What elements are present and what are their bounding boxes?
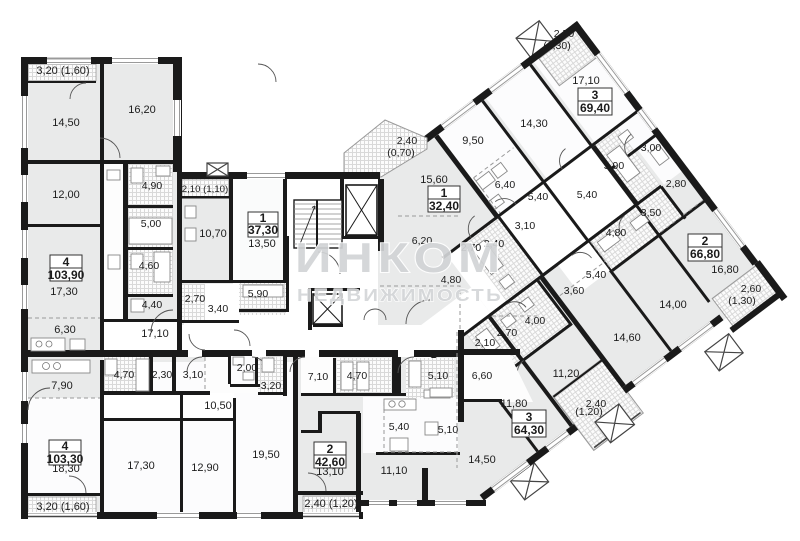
svg-text:3,10: 3,10	[515, 220, 536, 232]
svg-text:4,70: 4,70	[114, 369, 135, 381]
svg-text:4: 4	[63, 255, 70, 269]
svg-text:6,30: 6,30	[54, 324, 75, 336]
svg-text:4,90: 4,90	[142, 180, 163, 192]
svg-text:10,70: 10,70	[199, 228, 227, 240]
svg-text:5,10: 5,10	[428, 370, 449, 382]
svg-text:16,80: 16,80	[711, 264, 739, 276]
svg-text:66,80: 66,80	[690, 247, 720, 261]
svg-text:2,30: 2,30	[152, 369, 173, 381]
svg-text:2,80: 2,80	[666, 178, 687, 190]
svg-text:2,00: 2,00	[237, 362, 258, 374]
svg-text:16,20: 16,20	[128, 104, 156, 116]
svg-text:(0,70): (0,70)	[387, 147, 414, 159]
svg-text:12,90: 12,90	[191, 462, 219, 474]
svg-text:4,80: 4,80	[606, 227, 627, 239]
svg-text:103,90: 103,90	[48, 268, 85, 282]
svg-text:5,40: 5,40	[586, 269, 607, 281]
svg-text:2,40 (1,20): 2,40 (1,20)	[304, 498, 357, 510]
svg-text:3,20 (1,60): 3,20 (1,60)	[36, 65, 89, 77]
svg-text:2,70: 2,70	[185, 293, 206, 305]
svg-text:3,00: 3,00	[641, 142, 662, 154]
svg-text:7,90: 7,90	[51, 380, 72, 392]
svg-text:14,30: 14,30	[520, 118, 548, 130]
svg-text:3: 3	[526, 410, 533, 424]
svg-text:11,10: 11,10	[381, 465, 408, 477]
svg-text:11,20: 11,20	[553, 368, 580, 380]
svg-text:4,60: 4,60	[139, 260, 160, 272]
svg-text:5,00: 5,00	[141, 218, 162, 230]
svg-text:2: 2	[702, 234, 709, 248]
svg-text:1: 1	[441, 186, 448, 200]
svg-text:2,70: 2,70	[497, 327, 518, 339]
svg-text:37,30: 37,30	[248, 223, 278, 237]
svg-text:42,60: 42,60	[315, 455, 345, 469]
svg-text:69,40: 69,40	[580, 101, 610, 115]
svg-text:15,60: 15,60	[420, 174, 448, 186]
svg-text:6,40: 6,40	[495, 179, 516, 191]
svg-text:64,30: 64,30	[514, 423, 544, 437]
svg-text:103,30: 103,30	[47, 452, 84, 466]
svg-text:3,60: 3,60	[564, 285, 585, 297]
svg-text:12,00: 12,00	[52, 189, 80, 201]
svg-text:3,90: 3,90	[604, 160, 625, 172]
svg-text:10,50: 10,50	[204, 400, 232, 412]
svg-text:14,50: 14,50	[52, 117, 80, 129]
svg-text:17,30: 17,30	[127, 460, 155, 472]
svg-text:ИНКОМ: ИНКОМ	[295, 234, 505, 281]
svg-text:5,90: 5,90	[248, 288, 269, 300]
svg-text:4,40: 4,40	[142, 299, 163, 311]
svg-text:3,10: 3,10	[183, 369, 204, 381]
svg-text:2: 2	[327, 442, 334, 456]
svg-text:5,40: 5,40	[389, 421, 410, 433]
svg-text:3,20 (1,60): 3,20 (1,60)	[36, 501, 89, 513]
svg-text:17,10: 17,10	[141, 328, 169, 340]
svg-text:11,80: 11,80	[501, 398, 528, 410]
svg-text:3,20: 3,20	[261, 380, 282, 392]
svg-text:(1,30): (1,30)	[728, 295, 755, 307]
svg-text:(1,20): (1,20)	[575, 406, 602, 418]
svg-text:5,40: 5,40	[577, 189, 598, 201]
svg-text:НЕДВИЖИМОСТЬ: НЕДВИЖИМОСТЬ	[297, 285, 503, 305]
svg-text:17,30: 17,30	[50, 286, 78, 298]
svg-text:3: 3	[592, 88, 599, 102]
svg-text:4,70: 4,70	[347, 370, 368, 382]
svg-text:2,10: 2,10	[475, 337, 496, 349]
svg-text:6,60: 6,60	[472, 370, 493, 382]
svg-text:4,00: 4,00	[525, 315, 546, 327]
svg-text:2,50: 2,50	[554, 28, 575, 40]
svg-text:2,60: 2,60	[741, 283, 762, 295]
svg-text:(1,30): (1,30)	[543, 40, 570, 52]
svg-text:32,40: 32,40	[429, 199, 459, 213]
svg-text:5,40: 5,40	[528, 191, 549, 203]
svg-text:2,10 (1,10): 2,10 (1,10)	[182, 184, 228, 195]
svg-text:4: 4	[62, 439, 69, 453]
svg-text:3,40: 3,40	[208, 303, 229, 315]
svg-text:14,00: 14,00	[659, 299, 687, 311]
svg-text:7,10: 7,10	[308, 371, 329, 383]
svg-text:14,60: 14,60	[613, 332, 641, 344]
svg-text:17,10: 17,10	[572, 75, 600, 87]
svg-text:13,50: 13,50	[248, 238, 276, 250]
svg-text:9,50: 9,50	[462, 135, 483, 147]
svg-text:2,40: 2,40	[397, 135, 418, 147]
svg-text:5,10: 5,10	[438, 424, 459, 436]
svg-text:19,50: 19,50	[252, 449, 280, 461]
svg-text:14,50: 14,50	[468, 454, 496, 466]
svg-text:3,50: 3,50	[641, 207, 662, 219]
